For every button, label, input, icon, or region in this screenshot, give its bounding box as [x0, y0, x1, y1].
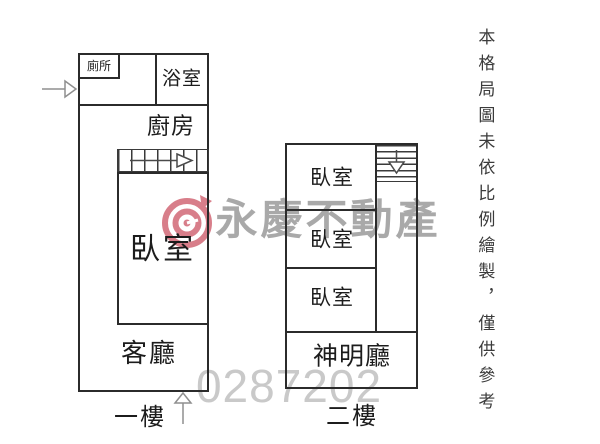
stairs-up-arrow-icon	[117, 149, 209, 172]
floor1-wall-top	[78, 53, 209, 55]
floor2-bedroom2-label: 臥室	[310, 230, 354, 251]
floor2-bedroom-divider1	[285, 209, 377, 211]
floor1-bedroom-wall-bottom	[117, 323, 209, 325]
floor1-section-divider	[78, 104, 209, 106]
entrance-arrow-bottom-icon	[173, 391, 193, 425]
entrance-arrow-left-icon	[40, 78, 78, 100]
bathroom-label: 浴室	[162, 70, 202, 89]
floor2-bedroom1-label: 臥室	[310, 168, 354, 189]
toilet-wall-bottom	[78, 77, 120, 79]
kitchen-label: 廚房	[147, 115, 195, 138]
floor2-bedroom-divider2	[285, 267, 377, 269]
floor1-bedroom-label: 臥室	[130, 235, 196, 265]
floor2-label: 二樓	[326, 405, 378, 429]
stairs-down-arrow-icon	[377, 145, 416, 181]
floor1-label: 一樓	[114, 406, 166, 430]
floor2-bedroom3-label: 臥室	[310, 288, 354, 309]
bathroom-wall-left	[155, 53, 157, 106]
toilet-label: 廁所	[87, 60, 111, 72]
floor2-wall-right	[416, 143, 418, 389]
shrine-hall-wall-top	[285, 331, 418, 333]
floorplan-image: 永慶不動產 0287202 廁所 浴室 廚房 臥室 客廳 一樓	[0, 0, 600, 444]
floor1-bedroom-wall-top	[117, 172, 209, 174]
living-room-label: 客廳	[121, 340, 177, 366]
shrine-hall-label: 神明廳	[313, 345, 391, 370]
floor2-wall-left	[285, 143, 287, 389]
floor1-bedroom-wall-left	[117, 172, 119, 325]
toilet-wall-right	[118, 53, 120, 79]
floor2-wall-bottom	[285, 387, 418, 389]
disclaimer-text: 本格局圖未依比例繪製，僅供參考	[474, 28, 494, 418]
